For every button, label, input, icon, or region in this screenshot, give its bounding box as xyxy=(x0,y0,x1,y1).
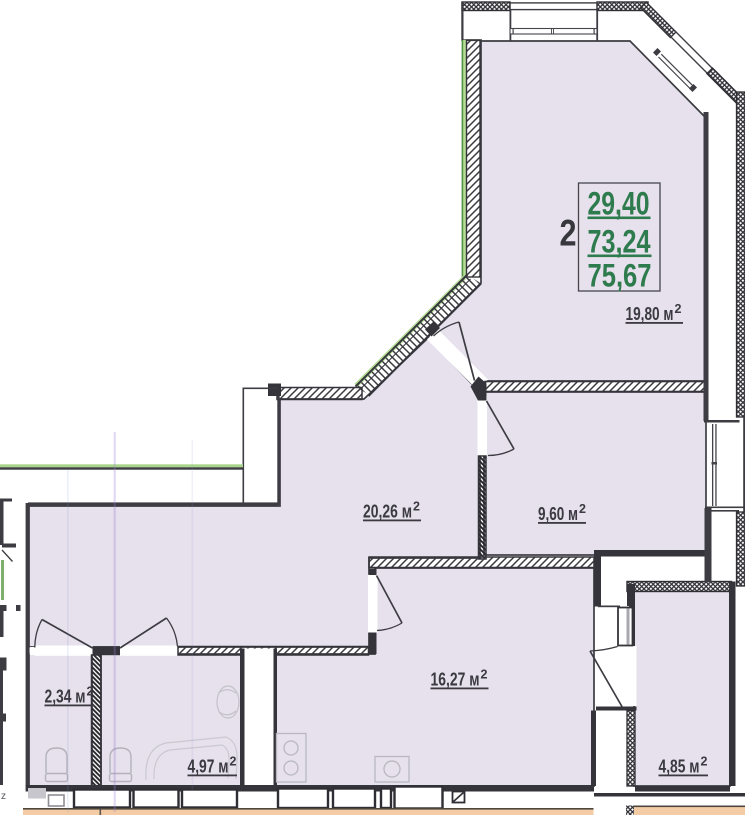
svg-text:2: 2 xyxy=(675,302,682,316)
svg-text:2: 2 xyxy=(87,685,94,699)
svg-text:4,85 м: 4,85 м xyxy=(659,757,700,777)
svg-text:20,26 м: 20,26 м xyxy=(363,502,412,522)
svg-text:16,27 м: 16,27 м xyxy=(431,670,480,690)
svg-text:9,60 м: 9,60 м xyxy=(538,504,578,524)
svg-text:2: 2 xyxy=(579,502,586,516)
svg-text:73,24: 73,24 xyxy=(588,224,651,260)
svg-text:19,80 м: 19,80 м xyxy=(626,304,674,324)
svg-text:2: 2 xyxy=(560,213,577,254)
svg-text:29,40: 29,40 xyxy=(588,186,650,222)
svg-text:z: z xyxy=(1,791,6,802)
svg-text:2,34 м: 2,34 м xyxy=(45,687,86,707)
svg-text:2: 2 xyxy=(481,668,488,682)
svg-text:4,97 м: 4,97 м xyxy=(188,757,229,777)
svg-text:2: 2 xyxy=(413,500,420,514)
svg-text:2: 2 xyxy=(230,755,237,769)
svg-text:75,67: 75,67 xyxy=(588,258,652,294)
svg-text:2: 2 xyxy=(701,755,708,769)
